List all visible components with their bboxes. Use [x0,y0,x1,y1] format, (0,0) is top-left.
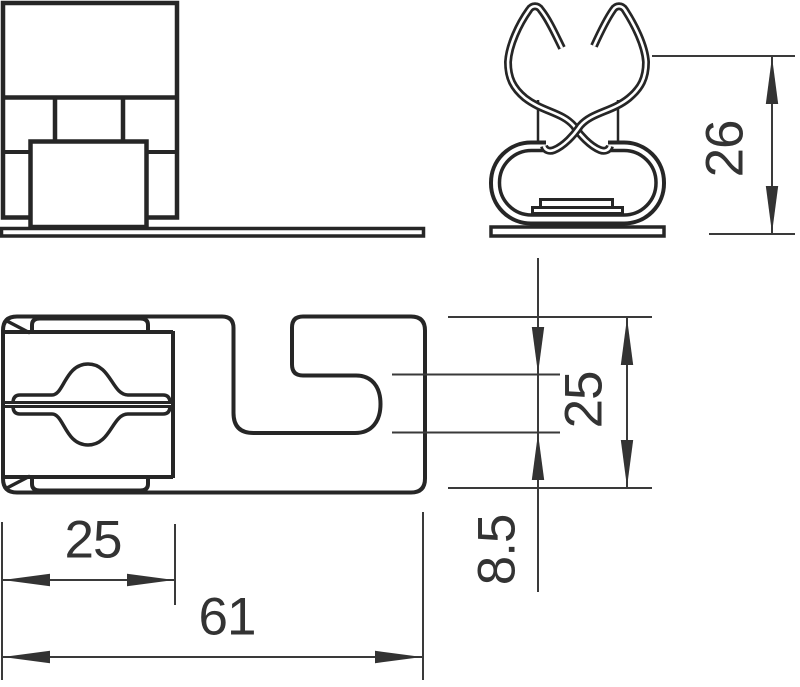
front-view [1,3,424,236]
plan-plate-outline-with-slot [3,317,425,493]
plan-view [3,317,425,493]
clip-right-ear-strip [544,6,646,151]
dim-label-overall-width: 61 [199,590,256,643]
clip-base-plate [491,227,664,236]
arrowhead-right [127,574,174,586]
clip-ledge-upper [541,200,613,208]
front-center-block [31,142,147,228]
arrowhead-left [3,574,50,586]
dim-label-clamp-width: 25 [65,513,122,566]
arrowhead-down [621,440,633,487]
side-view [491,6,664,236]
arrowhead-up [532,434,544,481]
arrowhead-up [621,318,633,365]
dimension-25-depth [448,317,652,488]
arrowhead-left [3,651,50,663]
arrowhead-down [532,327,544,374]
arrowhead-down [766,186,778,233]
dim-label-slot-height: 8.5 [471,515,524,586]
front-base-plate [2,229,424,237]
drawing-linework [0,0,800,687]
dim-label-body-depth: 25 [558,371,611,428]
dim-label-clip-height: 26 [699,120,752,177]
clip-left-ear-strip [508,6,610,151]
technical-drawing: 26 25 8.5 25 61 [0,0,800,687]
arrowhead-up [766,57,778,104]
arrowhead-right [375,651,422,663]
